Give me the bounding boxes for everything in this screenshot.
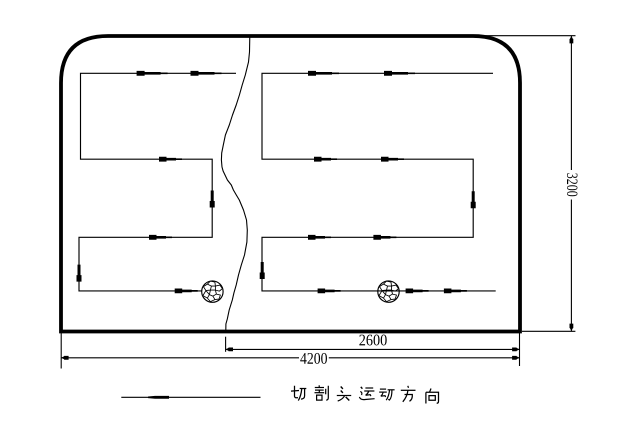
svg-text:2600: 2600 [359,330,388,349]
svg-text:4200: 4200 [300,349,328,368]
svg-text:3200: 3200 [563,173,582,197]
